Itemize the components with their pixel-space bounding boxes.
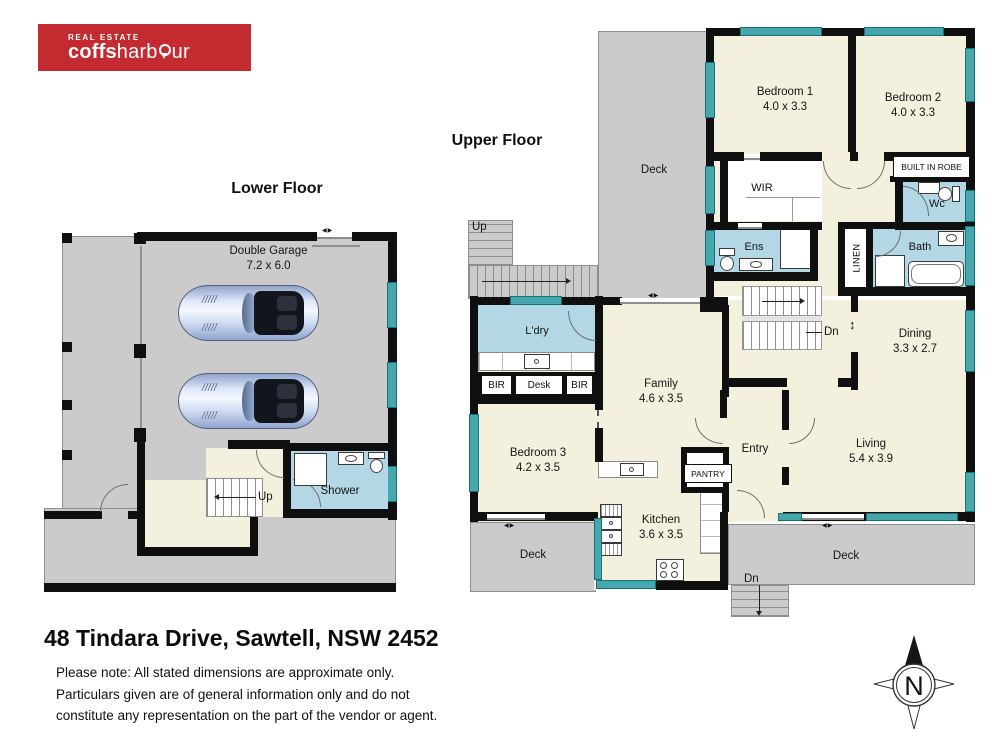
sliding-door-arrows-icon: ◀▶ xyxy=(322,228,333,234)
car-seat xyxy=(277,384,297,399)
window xyxy=(965,226,975,286)
room-label-entry: Entry xyxy=(723,442,787,457)
room-name: Dining xyxy=(853,327,977,342)
bathtub-inner xyxy=(911,264,961,284)
wall xyxy=(478,396,598,404)
room-label-linen: LINEN xyxy=(845,229,867,287)
burner xyxy=(671,571,678,578)
room-dims: 7.2 x 6.0 xyxy=(196,259,341,274)
logo-brand: coffsharbur xyxy=(68,42,251,63)
sink-drain xyxy=(534,359,539,364)
wall xyxy=(720,161,728,222)
room-label-living: Living 5.4 x 3.9 xyxy=(809,437,933,467)
wall xyxy=(137,232,317,241)
sliding-door xyxy=(738,223,762,229)
room-label-wir: WIR xyxy=(732,181,792,196)
room-label-bath: Bath xyxy=(898,240,942,255)
car-seat xyxy=(277,403,297,418)
wall xyxy=(866,229,873,288)
sliding-door-arrows-icon: ◀▶ xyxy=(648,293,659,299)
shower-cubicle xyxy=(780,229,812,269)
window xyxy=(965,472,975,512)
room-dims: 4.6 x 3.5 xyxy=(599,392,723,407)
sliding-door-arrows-icon: ◀▶ xyxy=(822,523,833,529)
car-vent xyxy=(201,411,220,419)
car-cabin xyxy=(254,291,304,335)
wall xyxy=(250,517,258,555)
wall xyxy=(44,583,396,592)
sliding-door-arrows-icon: ◀▶ xyxy=(504,523,515,529)
wall xyxy=(838,222,845,296)
post xyxy=(62,342,72,352)
room-dims: 4.0 x 3.3 xyxy=(723,100,847,115)
room-label-bedroom3: Bedroom 3 4.2 x 3.5 xyxy=(476,446,600,476)
room-label-ensuite: Ens xyxy=(724,240,784,255)
room-dims: 3.6 x 3.5 xyxy=(599,528,723,543)
logo-brand-rest-a: harb xyxy=(117,41,158,63)
linen-text: LINEN xyxy=(851,243,861,272)
car-seat xyxy=(277,296,297,311)
deck-label: Deck xyxy=(614,163,694,178)
stairs-up-label: Up xyxy=(472,220,502,235)
room-name: Bedroom 3 xyxy=(476,446,600,461)
bir-left-box: BIR xyxy=(481,375,512,395)
post xyxy=(62,233,72,243)
room-dims: 4.0 x 3.3 xyxy=(851,106,975,121)
stairs-down-label: Dn xyxy=(744,572,774,587)
arrow-icon xyxy=(566,278,574,284)
room-name: Living xyxy=(809,437,933,452)
arrow-icon xyxy=(211,494,219,500)
robe-line xyxy=(746,197,820,198)
car-cabin xyxy=(254,379,304,423)
room-label-dining: Dining 3.3 x 2.7 xyxy=(853,327,977,357)
car-vent xyxy=(201,383,220,391)
sliding-door xyxy=(802,514,864,520)
window xyxy=(387,282,397,328)
built-in-robe-label: BUILT IN ROBE xyxy=(901,162,962,172)
wall xyxy=(137,547,258,556)
wall xyxy=(838,287,975,296)
upper-floor-title: Upper Floor xyxy=(417,132,577,150)
basin-bowl xyxy=(946,234,957,242)
wall xyxy=(722,493,729,512)
room-dims: 3.3 x 2.7 xyxy=(853,342,977,357)
wall xyxy=(656,581,728,590)
stair-line xyxy=(762,301,802,302)
wall xyxy=(562,297,622,305)
sliding-door xyxy=(620,298,700,304)
wall xyxy=(283,509,397,518)
room-name: Kitchen xyxy=(599,513,723,528)
car-seat xyxy=(277,315,297,330)
window xyxy=(510,296,562,305)
disclaimer-note: Please note: All stated dimensions are a… xyxy=(56,662,437,727)
car-vent xyxy=(201,295,220,303)
stair-line xyxy=(759,585,760,613)
bir-right-box: BIR xyxy=(566,375,593,395)
disclaimer-line: Particulars given are of general informa… xyxy=(56,684,437,706)
car-icon xyxy=(178,373,319,429)
shower-cubicle xyxy=(875,255,905,287)
wall xyxy=(838,378,858,387)
wall xyxy=(848,28,856,152)
logo-brand-rest-b: ur xyxy=(172,41,190,63)
stair-landing xyxy=(742,315,822,322)
post xyxy=(134,344,146,358)
wall xyxy=(470,297,512,305)
post xyxy=(62,450,72,460)
pantry-label: PANTRY xyxy=(691,469,725,479)
stair-line xyxy=(482,281,566,282)
room-name: Family xyxy=(599,377,723,392)
shower-cubicle xyxy=(294,453,327,486)
built-in-robe-box: BUILT IN ROBE xyxy=(893,156,970,178)
wall xyxy=(782,390,789,430)
wall xyxy=(838,222,975,229)
disclaimer-line: constitute any representation on the par… xyxy=(56,705,437,727)
sink-drain xyxy=(629,467,634,472)
wall xyxy=(44,511,102,519)
wall xyxy=(851,287,858,312)
wall xyxy=(712,152,744,161)
room-label-bedroom2: Bedroom 2 4.0 x 3.3 xyxy=(851,91,975,121)
burner xyxy=(660,562,667,569)
arrow-icon xyxy=(756,611,762,619)
room-dims: 5.4 x 3.9 xyxy=(809,452,933,467)
toilet-tank xyxy=(368,452,385,459)
door-opening xyxy=(597,410,599,428)
bir-right-label: BIR xyxy=(571,380,588,391)
arrow-icon xyxy=(800,298,808,304)
room-label-wc: Wc xyxy=(920,197,954,212)
toilet-bowl xyxy=(720,256,734,271)
car-icon xyxy=(178,285,319,341)
basin-bowl xyxy=(750,261,762,268)
deck-label: Deck xyxy=(806,549,886,564)
room-label-bedroom1: Bedroom 1 4.0 x 3.3 xyxy=(723,85,847,115)
desk-box: Desk xyxy=(515,375,563,395)
burner xyxy=(660,571,667,578)
pantry-box: PANTRY xyxy=(684,464,732,483)
logo-brand-bold: coffs xyxy=(68,41,117,63)
garage-door-line xyxy=(140,246,142,430)
post xyxy=(62,400,72,410)
room-dims: 4.2 x 3.5 xyxy=(476,461,600,476)
window xyxy=(387,466,397,502)
basin-bowl xyxy=(345,455,357,462)
window xyxy=(387,362,397,408)
external-stairs-up-run xyxy=(468,265,598,299)
wall xyxy=(760,152,822,161)
stairs-down-label: Dn xyxy=(824,325,854,340)
window xyxy=(596,580,656,589)
wall xyxy=(137,430,145,556)
toilet-bowl xyxy=(370,459,383,473)
burner xyxy=(671,562,678,569)
post xyxy=(134,233,146,244)
window xyxy=(778,513,802,521)
desk-label: Desk xyxy=(528,380,551,391)
window xyxy=(705,230,715,266)
room-label-laundry: L'dry xyxy=(507,324,567,339)
deck-label: Deck xyxy=(493,548,573,563)
wall xyxy=(228,440,290,449)
window xyxy=(965,190,975,222)
sliding-door xyxy=(744,154,760,160)
window xyxy=(740,27,822,36)
wall xyxy=(782,467,789,485)
window xyxy=(864,27,944,36)
wall xyxy=(727,378,787,387)
room-label-family: Family 4.6 x 3.5 xyxy=(599,377,723,407)
sliding-door xyxy=(487,514,545,520)
property-address: 48 Tindara Drive, Sawtell, NSW 2452 xyxy=(44,625,439,652)
window xyxy=(705,62,715,118)
room-name: Bedroom 1 xyxy=(723,85,847,100)
window xyxy=(866,513,958,521)
floorplan-page: REAL ESTATE coffsharbur Lower Floor Uppe… xyxy=(0,0,1000,745)
label-leader xyxy=(216,497,256,498)
room-label-garage: Double Garage 7.2 x 6.0 xyxy=(196,244,341,274)
bir-left-label: BIR xyxy=(488,380,505,391)
wall xyxy=(712,272,818,281)
wall xyxy=(850,152,858,161)
stairs-up-label: Up xyxy=(258,490,288,505)
compass-north-label: N xyxy=(904,671,924,701)
wall xyxy=(283,443,393,451)
room-name: Double Garage xyxy=(196,244,341,259)
room-label-shower: Shower xyxy=(305,484,375,499)
room-name: Bedroom 2 xyxy=(851,91,975,106)
compass-rose-icon: N xyxy=(872,632,956,732)
vanity-basin xyxy=(918,182,940,194)
car-vent xyxy=(201,323,220,331)
window xyxy=(705,166,715,214)
room-label-kitchen: Kitchen 3.6 x 3.5 xyxy=(599,513,723,543)
agency-logo: REAL ESTATE coffsharbur xyxy=(38,24,251,71)
label-leader xyxy=(806,332,822,333)
map-pin-icon xyxy=(159,44,171,56)
disclaimer-line: Please note: All stated dimensions are a… xyxy=(56,662,437,684)
wall xyxy=(283,443,291,517)
robe-line xyxy=(792,197,793,221)
wall xyxy=(712,222,822,230)
appliance xyxy=(600,543,622,556)
lower-floor-title: Lower Floor xyxy=(197,180,357,198)
